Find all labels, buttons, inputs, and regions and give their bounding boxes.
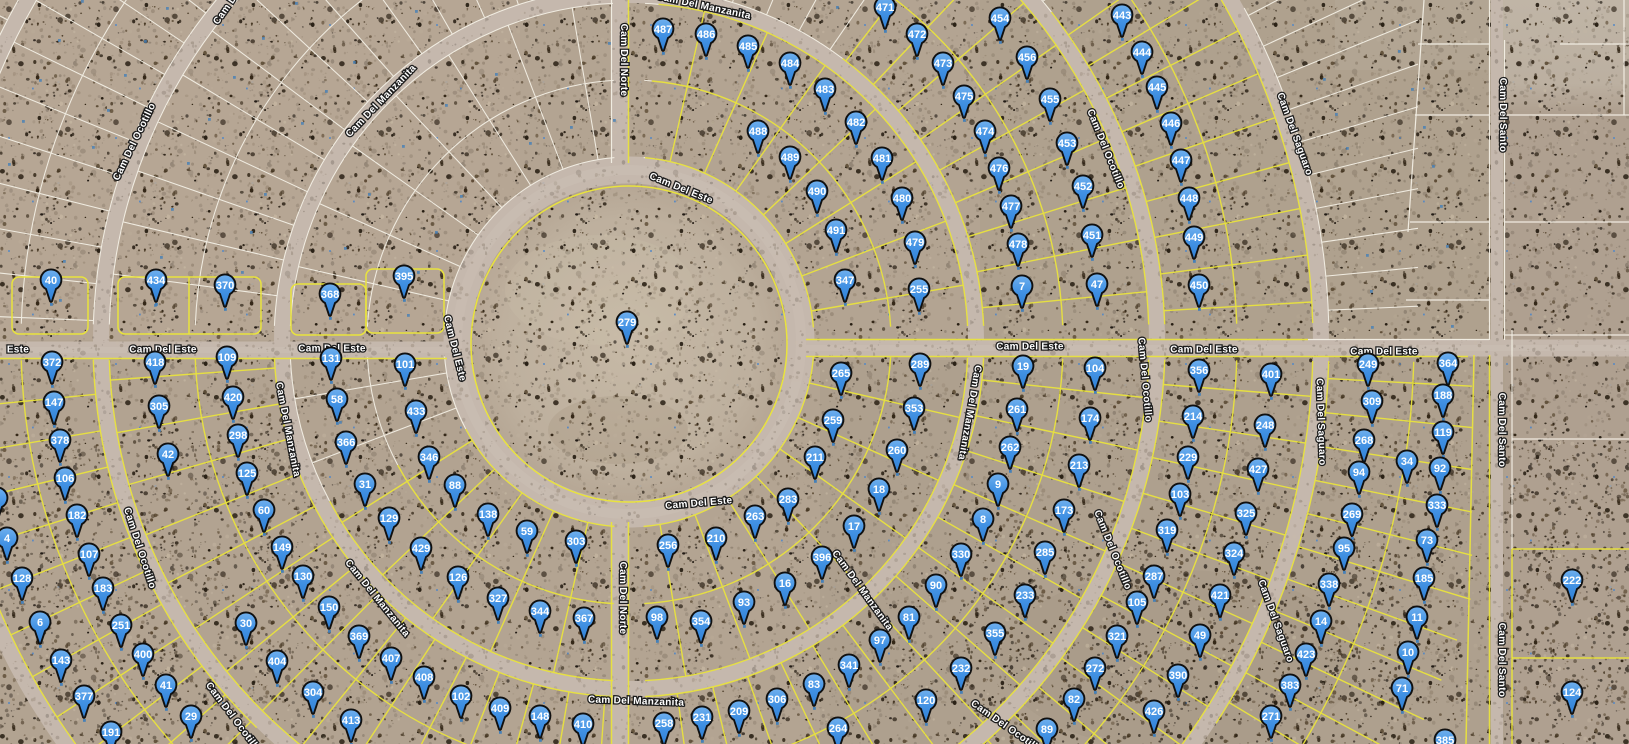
svg-text:449: 449 bbox=[1185, 232, 1203, 244]
svg-text:147: 147 bbox=[45, 397, 63, 409]
svg-text:185: 185 bbox=[1415, 573, 1433, 585]
svg-text:454: 454 bbox=[991, 13, 1010, 25]
svg-text:355: 355 bbox=[986, 628, 1004, 640]
svg-text:Cam Del Este: Cam Del Este bbox=[1170, 345, 1238, 356]
svg-text:89: 89 bbox=[1041, 724, 1053, 736]
svg-text:353: 353 bbox=[905, 403, 923, 415]
svg-text:232: 232 bbox=[952, 663, 970, 675]
svg-text:129: 129 bbox=[380, 513, 398, 525]
svg-text:94: 94 bbox=[1353, 467, 1366, 479]
svg-text:427: 427 bbox=[1249, 464, 1267, 476]
svg-text:58: 58 bbox=[331, 394, 343, 406]
svg-text:487: 487 bbox=[654, 24, 672, 36]
svg-text:73: 73 bbox=[1421, 535, 1433, 547]
svg-text:434: 434 bbox=[147, 275, 166, 287]
svg-text:483: 483 bbox=[816, 84, 834, 96]
svg-text:289: 289 bbox=[911, 359, 929, 371]
svg-text:17: 17 bbox=[848, 521, 860, 533]
svg-text:251: 251 bbox=[112, 620, 130, 632]
svg-text:368: 368 bbox=[321, 289, 339, 301]
svg-text:214: 214 bbox=[1184, 411, 1203, 423]
svg-text:209: 209 bbox=[730, 706, 748, 718]
svg-text:104: 104 bbox=[1086, 363, 1105, 375]
svg-text:480: 480 bbox=[893, 193, 911, 205]
svg-text:7: 7 bbox=[1019, 281, 1025, 293]
svg-text:327: 327 bbox=[489, 593, 507, 605]
svg-text:149: 149 bbox=[273, 542, 291, 554]
svg-text:101: 101 bbox=[396, 359, 414, 371]
svg-text:268: 268 bbox=[1355, 435, 1373, 447]
svg-text:447: 447 bbox=[1172, 155, 1190, 167]
svg-text:451: 451 bbox=[1083, 230, 1101, 242]
svg-text:255: 255 bbox=[910, 284, 928, 296]
svg-text:191: 191 bbox=[102, 727, 120, 739]
svg-text:364: 364 bbox=[1439, 358, 1458, 370]
svg-text:148: 148 bbox=[531, 711, 549, 723]
svg-text:378: 378 bbox=[51, 435, 69, 447]
svg-text:409: 409 bbox=[491, 703, 509, 715]
svg-text:370: 370 bbox=[216, 280, 234, 292]
svg-text:59: 59 bbox=[521, 526, 533, 538]
svg-text:81: 81 bbox=[903, 612, 915, 624]
svg-text:325: 325 bbox=[1237, 508, 1255, 520]
svg-text:261: 261 bbox=[1008, 404, 1026, 416]
svg-text:211: 211 bbox=[806, 452, 824, 464]
svg-text:Cam Del Santo: Cam Del Santo bbox=[1496, 623, 1507, 697]
svg-text:130: 130 bbox=[294, 571, 312, 583]
svg-text:306: 306 bbox=[768, 694, 786, 706]
svg-text:410: 410 bbox=[574, 719, 592, 731]
svg-text:30: 30 bbox=[240, 618, 252, 630]
svg-text:385: 385 bbox=[1436, 735, 1454, 744]
svg-text:125: 125 bbox=[238, 468, 256, 480]
svg-text:18: 18 bbox=[873, 484, 885, 496]
svg-text:401: 401 bbox=[1262, 369, 1280, 381]
svg-text:256: 256 bbox=[659, 540, 677, 552]
svg-text:354: 354 bbox=[692, 616, 711, 628]
svg-text:279: 279 bbox=[618, 317, 636, 329]
svg-text:478: 478 bbox=[1009, 239, 1027, 251]
svg-text:188: 188 bbox=[1434, 390, 1452, 402]
svg-text:443: 443 bbox=[1113, 10, 1131, 22]
svg-text:174: 174 bbox=[1081, 413, 1100, 425]
svg-text:407: 407 bbox=[382, 653, 400, 665]
svg-text:341: 341 bbox=[840, 660, 858, 672]
svg-text:183: 183 bbox=[94, 583, 112, 595]
svg-text:29: 29 bbox=[185, 711, 197, 723]
svg-text:138: 138 bbox=[479, 509, 497, 521]
svg-text:34: 34 bbox=[1401, 456, 1414, 468]
svg-text:4: 4 bbox=[4, 533, 11, 545]
svg-text:429: 429 bbox=[412, 543, 430, 555]
svg-text:264: 264 bbox=[829, 723, 848, 735]
svg-text:321: 321 bbox=[1108, 631, 1126, 643]
svg-text:309: 309 bbox=[1363, 396, 1381, 408]
svg-text:128: 128 bbox=[13, 573, 31, 585]
svg-text:421: 421 bbox=[1211, 590, 1229, 602]
svg-text:472: 472 bbox=[908, 29, 926, 41]
svg-text:298: 298 bbox=[229, 430, 247, 442]
svg-text:42: 42 bbox=[162, 449, 174, 461]
svg-text:304: 304 bbox=[304, 687, 323, 699]
svg-text:272: 272 bbox=[1086, 663, 1104, 675]
svg-text:248: 248 bbox=[1256, 420, 1274, 432]
svg-text:49: 49 bbox=[1194, 630, 1206, 642]
svg-text:423: 423 bbox=[1297, 649, 1315, 661]
svg-text:330: 330 bbox=[952, 549, 970, 561]
svg-text:210: 210 bbox=[707, 533, 725, 545]
svg-text:106: 106 bbox=[56, 473, 74, 485]
svg-text:71: 71 bbox=[1396, 683, 1408, 695]
svg-text:93: 93 bbox=[738, 597, 750, 609]
svg-text:372: 372 bbox=[43, 357, 61, 369]
svg-text:Cam Del Norte: Cam Del Norte bbox=[618, 24, 629, 97]
svg-text:473: 473 bbox=[934, 58, 952, 70]
svg-text:400: 400 bbox=[134, 649, 152, 661]
svg-text:82: 82 bbox=[1068, 694, 1080, 706]
svg-text:83: 83 bbox=[808, 679, 820, 691]
svg-text:259: 259 bbox=[824, 415, 842, 427]
svg-text:249: 249 bbox=[1359, 359, 1377, 371]
svg-text:426: 426 bbox=[1145, 706, 1163, 718]
svg-text:143: 143 bbox=[52, 655, 70, 667]
svg-text:90: 90 bbox=[930, 580, 942, 592]
svg-text:455: 455 bbox=[1041, 94, 1059, 106]
svg-text:305: 305 bbox=[150, 401, 168, 413]
svg-text:47: 47 bbox=[1091, 279, 1103, 291]
svg-text:263: 263 bbox=[746, 511, 764, 523]
svg-text:471: 471 bbox=[876, 2, 894, 14]
svg-text:482: 482 bbox=[847, 117, 865, 129]
svg-text:346: 346 bbox=[420, 452, 438, 464]
svg-text:98: 98 bbox=[651, 612, 663, 624]
svg-text:448: 448 bbox=[1180, 193, 1198, 205]
svg-text:6: 6 bbox=[37, 617, 43, 629]
svg-text:319: 319 bbox=[1158, 525, 1176, 537]
svg-text:9: 9 bbox=[995, 479, 1001, 491]
svg-text:489: 489 bbox=[781, 152, 799, 164]
svg-text:285: 285 bbox=[1036, 547, 1054, 559]
svg-text:120: 120 bbox=[917, 695, 935, 707]
svg-text:Cam Del Santo: Cam Del Santo bbox=[1497, 78, 1508, 152]
svg-text:481: 481 bbox=[873, 153, 891, 165]
svg-text:260: 260 bbox=[888, 445, 906, 457]
svg-text:103: 103 bbox=[1171, 489, 1189, 501]
svg-text:474: 474 bbox=[976, 126, 995, 138]
svg-text:229: 229 bbox=[1179, 452, 1197, 464]
svg-text:Cam Del Este: Cam Del Este bbox=[996, 342, 1064, 353]
svg-text:95: 95 bbox=[1338, 543, 1350, 555]
svg-text:404: 404 bbox=[268, 656, 287, 668]
svg-text:475: 475 bbox=[955, 91, 973, 103]
svg-text:408: 408 bbox=[415, 672, 433, 684]
svg-text:476: 476 bbox=[990, 163, 1008, 175]
svg-text:Este: Este bbox=[7, 345, 29, 356]
svg-text:344: 344 bbox=[531, 606, 550, 618]
svg-text:Cam Del Norte: Cam Del Norte bbox=[617, 562, 628, 635]
svg-text:477: 477 bbox=[1002, 201, 1020, 213]
svg-text:19: 19 bbox=[1017, 361, 1029, 373]
svg-text:420: 420 bbox=[224, 392, 242, 404]
svg-text:88: 88 bbox=[449, 480, 461, 492]
svg-text:173: 173 bbox=[1055, 505, 1073, 517]
svg-text:213: 213 bbox=[1070, 460, 1088, 472]
svg-text:182: 182 bbox=[68, 510, 86, 522]
svg-text:390: 390 bbox=[1169, 670, 1187, 682]
svg-text:109: 109 bbox=[218, 352, 236, 364]
svg-text:40: 40 bbox=[45, 275, 57, 287]
svg-text:377: 377 bbox=[75, 691, 93, 703]
svg-text:395: 395 bbox=[395, 271, 413, 283]
svg-text:119: 119 bbox=[1434, 427, 1452, 439]
svg-text:107: 107 bbox=[80, 549, 98, 561]
svg-text:11: 11 bbox=[1411, 612, 1423, 624]
svg-text:446: 446 bbox=[1162, 118, 1180, 130]
svg-text:16: 16 bbox=[779, 578, 791, 590]
svg-text:271: 271 bbox=[1262, 711, 1280, 723]
svg-text:105: 105 bbox=[1128, 597, 1146, 609]
svg-text:124: 124 bbox=[1563, 687, 1582, 699]
svg-text:452: 452 bbox=[1074, 181, 1092, 193]
svg-text:265: 265 bbox=[832, 368, 850, 380]
svg-text:303: 303 bbox=[567, 536, 585, 548]
svg-text:97: 97 bbox=[874, 635, 886, 647]
svg-text:222: 222 bbox=[1563, 575, 1581, 587]
svg-text:445: 445 bbox=[1148, 82, 1166, 94]
svg-text:Cam Del Santo: Cam Del Santo bbox=[1496, 393, 1507, 467]
svg-text:491: 491 bbox=[827, 225, 845, 237]
svg-text:444: 444 bbox=[1133, 47, 1152, 59]
svg-text:126: 126 bbox=[449, 572, 467, 584]
svg-text:479: 479 bbox=[906, 237, 924, 249]
svg-text:92: 92 bbox=[1434, 463, 1446, 475]
svg-text:333: 333 bbox=[1428, 500, 1446, 512]
svg-text:366: 366 bbox=[337, 437, 355, 449]
svg-text:383: 383 bbox=[1281, 680, 1299, 692]
svg-text:324: 324 bbox=[1225, 548, 1244, 560]
svg-text:396: 396 bbox=[813, 552, 831, 564]
svg-text:131: 131 bbox=[322, 353, 340, 365]
svg-text:231: 231 bbox=[693, 712, 711, 724]
svg-text:488: 488 bbox=[749, 126, 767, 138]
svg-text:486: 486 bbox=[697, 29, 715, 41]
svg-text:287: 287 bbox=[1145, 571, 1163, 583]
svg-text:8: 8 bbox=[980, 514, 986, 526]
svg-text:484: 484 bbox=[781, 58, 800, 70]
svg-text:269: 269 bbox=[1343, 509, 1361, 521]
svg-text:413: 413 bbox=[342, 715, 360, 727]
svg-text:283: 283 bbox=[779, 494, 797, 506]
svg-text:Cam Del Este: Cam Del Este bbox=[129, 345, 197, 356]
svg-text:490: 490 bbox=[808, 186, 826, 198]
svg-text:450: 450 bbox=[1190, 280, 1208, 292]
svg-text:418: 418 bbox=[146, 357, 164, 369]
svg-text:485: 485 bbox=[739, 41, 757, 53]
svg-text:150: 150 bbox=[320, 602, 338, 614]
svg-text:433: 433 bbox=[407, 406, 425, 418]
svg-text:347: 347 bbox=[836, 275, 854, 287]
svg-text:338: 338 bbox=[1320, 579, 1338, 591]
svg-text:262: 262 bbox=[1001, 442, 1019, 454]
svg-text:356: 356 bbox=[1190, 365, 1208, 377]
svg-text:41: 41 bbox=[160, 680, 172, 692]
svg-text:31: 31 bbox=[359, 479, 371, 491]
svg-text:233: 233 bbox=[1016, 590, 1034, 602]
svg-text:369: 369 bbox=[350, 631, 368, 643]
svg-text:10: 10 bbox=[1402, 647, 1414, 659]
svg-text:453: 453 bbox=[1058, 138, 1076, 150]
svg-text:367: 367 bbox=[575, 613, 593, 625]
svg-text:60: 60 bbox=[258, 505, 270, 517]
svg-text:102: 102 bbox=[452, 691, 470, 703]
svg-text:258: 258 bbox=[655, 718, 673, 730]
svg-text:456: 456 bbox=[1018, 52, 1036, 64]
svg-text:14: 14 bbox=[1315, 616, 1328, 628]
